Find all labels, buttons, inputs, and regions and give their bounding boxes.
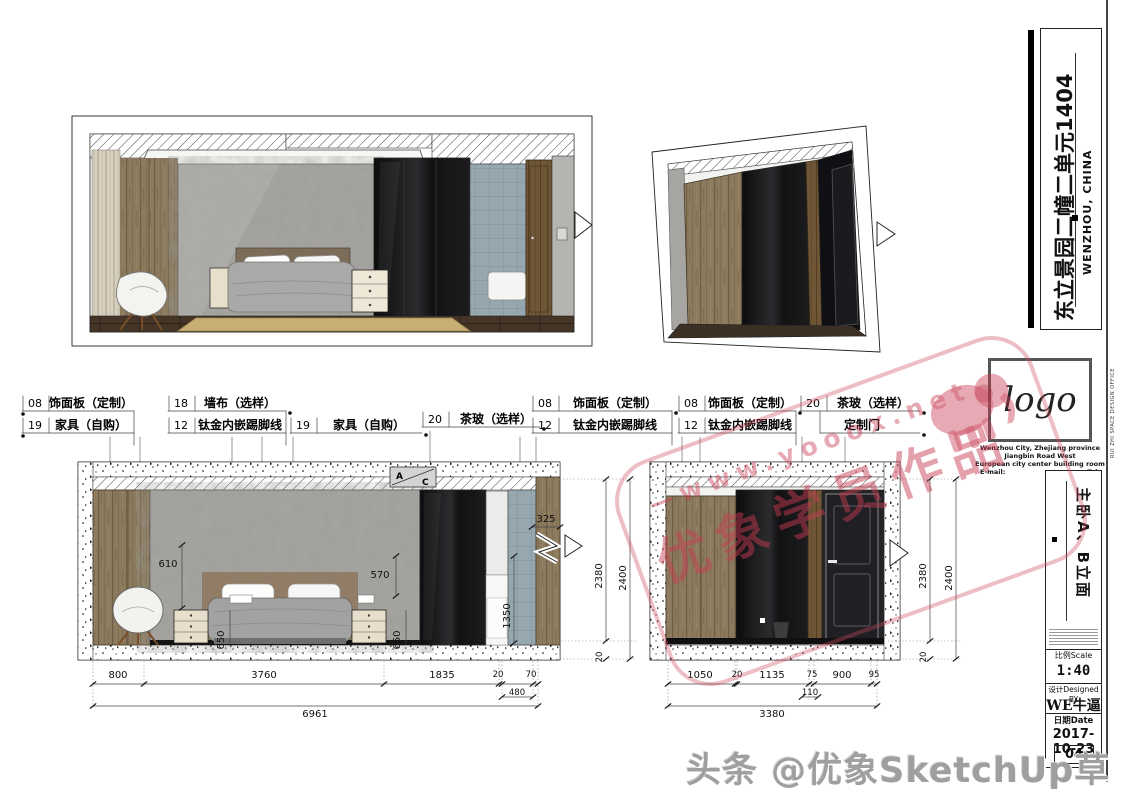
- scale-value: 1:40: [1046, 663, 1101, 679]
- door-handle: [828, 560, 837, 563]
- callout-group: 20 茶玻（选样）: [422, 411, 546, 431]
- project-location: WENZHOU, CHINA: [1081, 150, 1094, 275]
- perspective-view-secondary: [652, 126, 895, 352]
- dimensions-elevation-a-bottom: 800 3760 1835 20 70 480 6961: [90, 661, 541, 720]
- dim-label: 20: [919, 652, 929, 663]
- callout-label: 茶玻（选样）: [836, 395, 909, 410]
- callout-label: 饰面板（定制）: [708, 395, 792, 410]
- address-line2: European city center building room: [966, 460, 1114, 468]
- dim-label: 3380: [759, 709, 784, 720]
- logo-box: logo: [988, 358, 1092, 442]
- dim-label: 480: [509, 688, 525, 698]
- callout-number: 18: [174, 397, 188, 410]
- notes-block: [1049, 629, 1098, 647]
- callout-number: 08: [684, 397, 698, 410]
- callout-number: 12: [538, 419, 552, 432]
- black-glass-wardrobe: [742, 162, 810, 332]
- callout-label: 饰面板（定制）: [49, 395, 133, 410]
- callout-number: 12: [684, 419, 698, 432]
- nightstand-left: [174, 610, 208, 643]
- caption: 头条 @优象SketchUp草图大师: [686, 742, 1131, 800]
- callout-number: 20: [806, 397, 820, 410]
- title-block-divider-bar: [1028, 30, 1034, 328]
- dim-label: 6961: [302, 709, 327, 720]
- bathroom-door: [526, 160, 552, 318]
- callout-label: 茶玻（选样）: [459, 411, 532, 426]
- switch-plate: [358, 595, 374, 603]
- dim-label: 110: [802, 688, 818, 698]
- callout-label: 定制门: [844, 417, 880, 432]
- divider: [1075, 53, 1076, 307]
- callout-label: 钛金内嵌踢脚线: [573, 417, 657, 432]
- dim-label: 95: [869, 670, 880, 680]
- callout-label: 家具（自购）: [333, 417, 405, 432]
- dim-label: 1050: [687, 670, 712, 681]
- drawing-title: 主卧A、B立面: [1073, 487, 1094, 599]
- bathtub: [488, 272, 526, 300]
- dim-label: 1135: [759, 670, 784, 681]
- callout-number: 20: [428, 413, 442, 426]
- curtain: [92, 150, 120, 322]
- dim-label: 2400: [944, 565, 955, 590]
- section-arrow-icon: [565, 535, 582, 557]
- mirror-panel: [486, 491, 508, 575]
- email-label: E-mail:: [980, 468, 1005, 476]
- callout-number: 08: [28, 397, 42, 410]
- dark-door: [822, 490, 884, 644]
- callout-number: 19: [28, 419, 42, 432]
- elevation-a: A C: [78, 462, 582, 660]
- detail-marker: A C: [390, 467, 436, 488]
- dim-label: 2380: [918, 563, 929, 588]
- nightstand-right: [352, 610, 386, 643]
- dim-label: 75: [807, 670, 818, 680]
- dim-label: 900: [832, 670, 851, 681]
- callout-label: 墙布（选样）: [204, 395, 276, 410]
- dim-label: 20: [595, 652, 605, 663]
- wood-panel: [684, 172, 742, 328]
- section-arrow-icon: [575, 212, 592, 238]
- dim-label: 650: [392, 630, 403, 649]
- detail-marker-c: C: [422, 478, 429, 488]
- dim-label: 3760: [251, 670, 276, 681]
- elevation-b: [650, 462, 908, 660]
- perspective-view-main: [72, 116, 592, 346]
- nightstand-right: [352, 270, 388, 312]
- dim-label: 2400: [618, 565, 629, 590]
- wardrobe-black-glass: [420, 490, 486, 645]
- callout-label: 饰面板（定制）: [573, 395, 657, 410]
- black-glass-wardrobe: [736, 490, 808, 644]
- address-line1: Wenzhou City, Zhejiang province Jiangbin…: [966, 444, 1114, 460]
- square-marker-icon: [1052, 537, 1057, 542]
- skirting: [666, 638, 884, 644]
- divider: [1066, 481, 1067, 621]
- callout-group: 18 墙布（选样） 12 钛金内嵌踢脚线: [168, 395, 292, 445]
- callout-group: 20 茶玻（选样） 定制门: [800, 395, 926, 437]
- dim-label: 1350: [502, 603, 513, 628]
- scale-label: 比例Scale: [1046, 649, 1101, 661]
- dimensions-elevation-b-bottom: 1050 20 1135 75 900 95 110 3380: [665, 661, 880, 720]
- title-block-project: 东立景园二幢二单元1404 WENZHOU, CHINA: [1040, 28, 1102, 330]
- sheet-border-line: [1106, 0, 1108, 782]
- dim-label: 2380: [594, 563, 605, 588]
- logo: logo: [1003, 380, 1077, 420]
- designer-name: WE牛逼: [1046, 695, 1101, 715]
- callout-label: 家具（自购）: [55, 417, 127, 432]
- callout-number: 19: [296, 419, 310, 432]
- dim-label: 70: [526, 670, 537, 680]
- callout-label: 钛金内嵌踢脚线: [708, 417, 792, 432]
- dim-label: 570: [370, 570, 389, 581]
- bathroom: [470, 164, 526, 318]
- title-block-lower: 图名Drawing Title 主卧A、B立面 比例Scale 1:40 设计D…: [1045, 470, 1102, 768]
- dim-label: 800: [108, 670, 127, 681]
- callout-label: 钛金内嵌踢脚线: [198, 417, 282, 432]
- rug: [178, 318, 470, 331]
- dim-label: 1835: [429, 670, 454, 681]
- callout-number: 12: [174, 419, 188, 432]
- dim-label: 325: [536, 514, 555, 525]
- dim-label: 610: [158, 559, 177, 570]
- callout-group: 08 饰面板（定制） 12 钛金内嵌踢脚线: [678, 395, 802, 445]
- callout-number: 08: [538, 397, 552, 410]
- callout-group: 08 饰面板（定制） 12 钛金内嵌踢脚线: [532, 395, 678, 445]
- date-label: 日期Date: [1046, 713, 1101, 726]
- section-arrow-icon: [877, 222, 895, 246]
- switch-plate: [230, 595, 252, 603]
- square-marker-icon: [1072, 215, 1078, 221]
- dim-label: 650: [216, 630, 227, 649]
- drawing-sheet-svg: 08 饰面板（定制） 19 家具（自购） 18 墙布（选样） 12 钛金内嵌踢脚…: [0, 0, 1131, 800]
- dim-label: 20: [493, 670, 504, 680]
- drawing-sheet: 08 饰面板（定制） 19 家具（自购） 18 墙布（选样） 12 钛金内嵌踢脚…: [0, 0, 1131, 800]
- callout-group: 19 家具（自购）: [290, 417, 428, 437]
- callout-group: 08 饰面板（定制） 19 家具（自购）: [21, 395, 134, 445]
- detail-marker-a: A: [396, 472, 403, 482]
- dim-label: 20: [732, 670, 743, 680]
